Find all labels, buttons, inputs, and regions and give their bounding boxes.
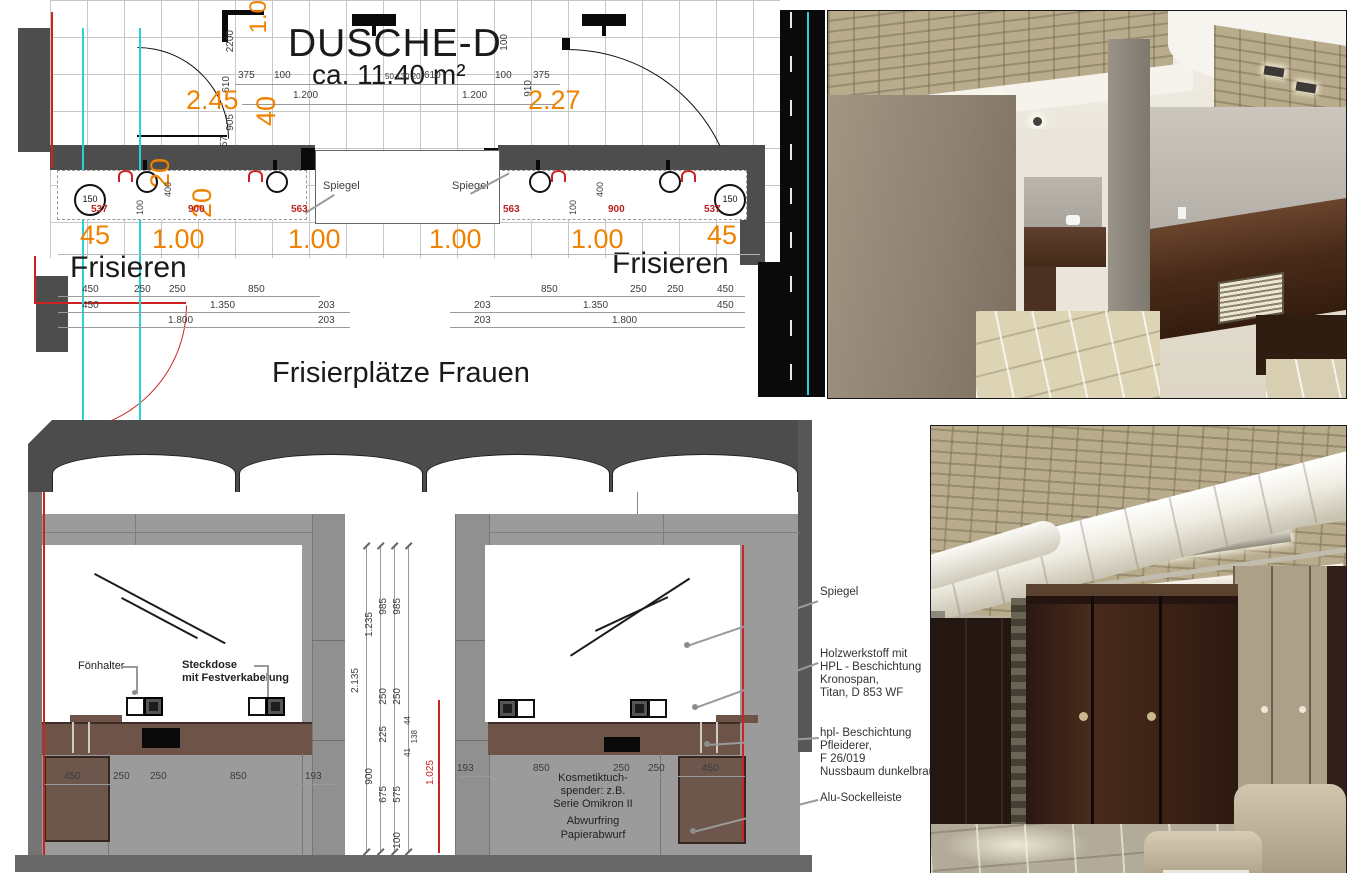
render1-spotlight xyxy=(1033,117,1042,126)
dim-label-orange: 1.00 xyxy=(288,225,341,253)
panel-joint xyxy=(663,514,664,545)
dim-label: 203 xyxy=(318,316,335,327)
socket-outlet xyxy=(126,697,145,716)
label-steckdose-2: mit Festverkabelung xyxy=(182,673,289,685)
wall-corner-a xyxy=(301,148,315,170)
note-kosmetik-2: spender: z.B. xyxy=(523,786,663,798)
elevation-ceiling-band xyxy=(28,420,812,492)
dim-label: 375 xyxy=(533,71,550,82)
soffit-joint xyxy=(637,492,638,514)
note-kosmetik-3: Serie Omikron II xyxy=(523,799,663,811)
note-abwurfring: Abwurfring xyxy=(523,816,663,828)
dim-label: 1.350 xyxy=(583,301,608,312)
render-washroom xyxy=(827,10,1347,399)
dim-label-orange: 1.00 xyxy=(152,225,205,253)
dim-label: 250 xyxy=(150,772,167,783)
dim-label: 203 xyxy=(474,301,491,312)
leader-dot xyxy=(684,642,690,648)
plan-caption: Frisierplätze Frauen xyxy=(272,358,530,388)
leader-dot xyxy=(692,704,698,710)
dim-label: 44 xyxy=(404,716,412,725)
dim-label: 450 xyxy=(64,772,81,783)
label-leader xyxy=(254,665,268,667)
dim-label: 450 xyxy=(717,301,734,312)
render1-towel xyxy=(1066,215,1080,225)
dim-label-orange: 2.45 xyxy=(186,86,239,114)
label-leader xyxy=(267,665,269,697)
mirror-label-plan-a: Spiegel xyxy=(323,181,360,193)
panel-joint xyxy=(488,532,800,533)
render1-floor xyxy=(976,311,1160,398)
dim-label: 1.235 xyxy=(365,612,376,637)
callout-hpl: Nussbaum dunkelbraun xyxy=(820,766,941,778)
dim-label: 610 xyxy=(424,71,441,82)
socket-wired xyxy=(498,699,517,718)
door-arc-right xyxy=(567,49,737,146)
counter-leg xyxy=(700,722,702,753)
dim-label: 100 xyxy=(569,200,578,215)
basin-stem-2 xyxy=(273,160,277,170)
dim-label-red: 900 xyxy=(188,205,205,216)
callout-spiegel: Spiegel xyxy=(820,586,858,598)
counter-cutout-right xyxy=(604,737,640,752)
red-door-leaf xyxy=(34,302,186,304)
dim-label: 850 xyxy=(248,285,265,296)
dim-label-red: 537 xyxy=(91,205,108,216)
dim-label: 100 xyxy=(393,832,404,849)
socket-outlet xyxy=(248,697,267,716)
drawing-sheet: Spiegel Spiegel 150 150 DUSCHE-D ca. 11.… xyxy=(0,0,1347,873)
dimension-line xyxy=(366,545,367,853)
render2-lockers-left xyxy=(931,618,1013,858)
render2-locker-seam xyxy=(1159,596,1162,858)
render1-corridor-mirror xyxy=(1024,177,1102,227)
red-reference-line xyxy=(742,545,744,841)
poche-centerline xyxy=(790,12,792,395)
fitting-symbol-3 xyxy=(551,170,566,182)
dim-label: 675 xyxy=(379,786,390,803)
dim-label: 575 xyxy=(393,786,404,803)
shower-stem-b xyxy=(602,26,606,36)
callout-sockelleiste: Alu-Sockelleiste xyxy=(820,792,902,804)
callout-holzwerkstoff: Titan, D 853 WF xyxy=(820,687,903,699)
render-lockers xyxy=(930,425,1347,873)
dim-label-red: 563 xyxy=(291,205,308,216)
dimension-line xyxy=(450,327,745,328)
dimension-line xyxy=(242,104,554,105)
dim-label: 225 xyxy=(379,726,390,743)
dim-label: 2200 xyxy=(226,30,237,52)
dimension-line xyxy=(450,312,745,313)
render2-locker-handle xyxy=(1147,712,1156,721)
label-leader xyxy=(123,666,137,668)
callout-hpl: F 26/019 xyxy=(820,753,865,765)
dim-label: 100 xyxy=(274,71,291,82)
base-cabinet-left xyxy=(44,756,110,842)
room-label-frisieren-right: Frisieren xyxy=(612,248,729,280)
counter-leg xyxy=(716,722,718,753)
door-leaf-left xyxy=(137,135,227,137)
socket-wired xyxy=(630,699,649,718)
dim-label: 100 xyxy=(136,200,145,215)
dim-label: 203 xyxy=(318,301,335,312)
room-label-frisieren-left: Frisieren xyxy=(70,252,187,284)
dim-label: 138 xyxy=(411,730,419,743)
dim-label: 57 xyxy=(220,136,231,147)
elevation-view: 2.135 1.235 900 985 250 225 675 985 250 … xyxy=(0,415,825,873)
pillar-joint xyxy=(455,640,488,641)
callout-hpl: hpl- Beschichtung xyxy=(820,727,911,739)
dim-label: 450 xyxy=(82,285,99,296)
dim-label: 850 xyxy=(230,772,247,783)
basin-symbol-2 xyxy=(266,171,288,193)
dim-label-red: 563 xyxy=(503,205,520,216)
callout-holzwerkstoff: HPL - Beschichtung xyxy=(820,661,921,673)
dim-label: 250 xyxy=(630,285,647,296)
dim-label: 100 xyxy=(500,34,511,51)
dim-label: 250 xyxy=(134,285,151,296)
render2-bench xyxy=(1144,831,1262,873)
dim-label: 450 xyxy=(82,301,99,312)
dim-label: 1.200 xyxy=(293,91,318,102)
dim-label: 1.800 xyxy=(168,316,193,327)
dim-label: 193 xyxy=(305,772,322,783)
dimension-line xyxy=(408,545,409,853)
label-foenhalter: Fönhalter xyxy=(78,661,124,673)
dim-label: 450 xyxy=(702,764,719,775)
dim-label-orange: 1.00 xyxy=(429,225,482,253)
vault-arch xyxy=(426,454,610,492)
elevation-soffit xyxy=(42,492,800,515)
dim-label-orange: 45 xyxy=(707,221,737,249)
dimension-line xyxy=(58,312,350,313)
red-reference-line xyxy=(43,492,45,855)
panel-joint xyxy=(135,514,136,545)
dim-label-red: 900 xyxy=(608,205,625,216)
fitting-symbol-1 xyxy=(118,170,133,182)
render2-locker-handle xyxy=(1261,706,1268,713)
dim-label: 250 xyxy=(393,688,404,705)
note-kosmetik-1: Kosmetiktuch- xyxy=(523,773,663,785)
floor-plan: Spiegel Spiegel 150 150 DUSCHE-D ca. 11.… xyxy=(0,0,780,415)
pillar-joint xyxy=(312,640,345,641)
render2-locker-seam xyxy=(1091,596,1094,858)
wall-joint xyxy=(302,753,303,855)
leader-dot xyxy=(704,741,710,747)
pillar-joint xyxy=(455,740,488,741)
band-corner-cut xyxy=(28,420,52,444)
vault-arch xyxy=(52,454,236,492)
dim-label-orange: 1.0 xyxy=(246,0,271,33)
dim-label: 1.200 xyxy=(462,91,487,102)
fitting-symbol-4 xyxy=(681,170,696,182)
render2-locker-handle xyxy=(1079,712,1088,721)
render1-floor-right xyxy=(1266,359,1346,398)
basin-symbol-4 xyxy=(659,171,681,193)
dim-label: 850 xyxy=(541,285,558,296)
dimension-line xyxy=(58,254,760,255)
basin-stem-3 xyxy=(536,160,540,170)
dimension-line xyxy=(490,296,745,297)
fitting-symbol-2 xyxy=(248,170,263,182)
door-arc-right-clip xyxy=(567,49,737,146)
dim-label: 900 xyxy=(365,768,376,785)
vault-arch xyxy=(612,454,798,492)
socket-outlet xyxy=(648,699,667,718)
dimension-line xyxy=(58,327,350,328)
dim-label: 985 xyxy=(379,598,390,615)
dim-label-red: 537 xyxy=(704,205,721,216)
leader-dot xyxy=(132,690,137,695)
dim-label: 250 xyxy=(379,688,390,705)
dimension-line xyxy=(58,296,320,297)
dim-label-red: 1.025 xyxy=(426,760,437,785)
dim-label: 100 xyxy=(495,71,512,82)
elevation-right-edge xyxy=(798,420,812,752)
dim-label: 250 xyxy=(667,285,684,296)
panel-joint xyxy=(42,532,312,533)
dim-label: 50 130 20 xyxy=(385,73,421,81)
render1-cup xyxy=(1178,207,1186,219)
callout-hpl: Pfleiderer, xyxy=(820,740,872,752)
wall-left xyxy=(18,28,50,152)
axis-line-c xyxy=(807,12,809,395)
axis-line-b xyxy=(139,28,141,438)
dim-label: 193 xyxy=(457,764,474,775)
dim-label: 2.135 xyxy=(351,668,362,693)
socket-wired xyxy=(144,697,163,716)
socket-outlet xyxy=(516,699,535,718)
counter-cutout-left xyxy=(142,728,180,748)
note-papierabwurf: Papierabwurf xyxy=(523,830,663,842)
counter-leg xyxy=(88,722,90,753)
dim-label: 1.800 xyxy=(612,316,637,327)
basin-symbol-3 xyxy=(529,171,551,193)
shower-fixture-b xyxy=(582,14,626,26)
dim-label: 400 xyxy=(164,182,173,197)
red-wall-line xyxy=(51,12,53,168)
dim-label-orange: 2.27 xyxy=(528,86,581,114)
basin-stem-4 xyxy=(666,160,670,170)
vault-arch xyxy=(239,454,423,492)
render1-corridor-counter xyxy=(1024,227,1106,267)
floor-band xyxy=(15,855,812,872)
dim-label-orange: 45 xyxy=(80,221,110,249)
dimension-line xyxy=(45,784,337,785)
dim-label: 905 xyxy=(226,114,237,131)
red-jamb xyxy=(34,256,36,304)
dim-label: 250 xyxy=(113,772,130,783)
pillar-left xyxy=(312,514,347,855)
elevation-left-edge xyxy=(28,492,42,855)
dim-label: 375 xyxy=(238,71,255,82)
callout-holzwerkstoff: Kronospan, xyxy=(820,674,879,686)
pillar-joint xyxy=(312,740,345,741)
dim-label: 400 xyxy=(596,182,605,197)
label-steckdose-1: Steckdose xyxy=(182,660,237,672)
dimension-line xyxy=(235,84,560,85)
dim-label: 250 xyxy=(169,285,186,296)
dim-label: 450 xyxy=(717,285,734,296)
dim-label-orange: 40 xyxy=(252,96,280,126)
dim-label: 985 xyxy=(393,598,404,615)
mirror-right xyxy=(485,545,740,690)
dim-label: 41 xyxy=(404,748,412,757)
leader-dot xyxy=(690,828,696,834)
dim-label: 1.350 xyxy=(210,301,235,312)
render2-locker-handle xyxy=(1299,706,1306,713)
counter-leg xyxy=(72,722,74,753)
callout-holzwerkstoff: Holzwerkstoff mit xyxy=(820,648,907,660)
dimension-line-red xyxy=(438,700,440,853)
render2-floor-light xyxy=(941,824,1091,866)
socket-wired xyxy=(266,697,285,716)
dim-label: 203 xyxy=(474,316,491,327)
